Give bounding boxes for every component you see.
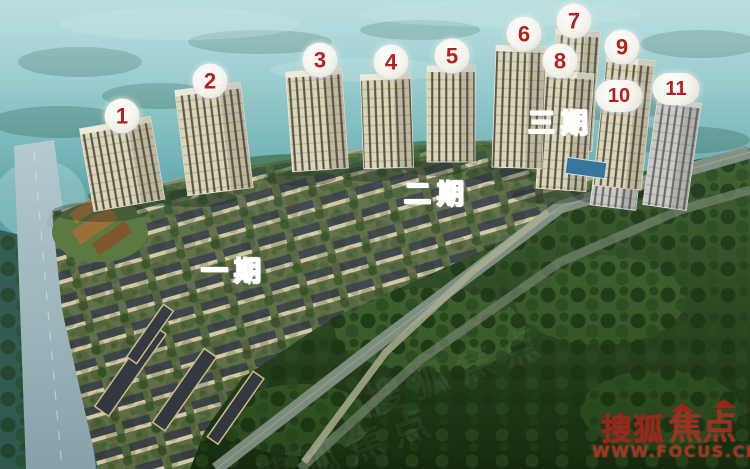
- building-marker-3: 3: [303, 43, 338, 78]
- building-marker-1: 1: [105, 99, 140, 134]
- phase-label-1: 一期: [195, 250, 267, 289]
- phase-label-2: 二期: [398, 173, 470, 212]
- building-marker-2: 2: [193, 64, 228, 99]
- building-marker-4: 4: [374, 45, 409, 80]
- building-marker-10: 10: [596, 80, 643, 112]
- watermark-brand-focus-text: 焦点: [669, 408, 737, 448]
- building-marker-5: 5: [435, 39, 470, 74]
- aerial-site-plan: 搜狐焦点 搜狐焦点 1 2 3 4 5 6 7 8 9 10 11 一期 二期 …: [0, 0, 750, 469]
- roof-icon: [712, 399, 736, 408]
- building-marker-8: 8: [543, 44, 578, 79]
- phase-label-3: 三期: [522, 102, 594, 141]
- building-marker-11: 11: [653, 73, 700, 105]
- building-marker-6: 6: [507, 17, 542, 52]
- building-marker-7: 7: [557, 4, 592, 39]
- roof-icon: [670, 403, 694, 412]
- focus-watermark: 搜狐 焦点 WWW.FOCUS.CN: [592, 411, 746, 461]
- watermark-brand-focus: 焦点: [669, 411, 737, 447]
- building-marker-9: 9: [605, 30, 640, 65]
